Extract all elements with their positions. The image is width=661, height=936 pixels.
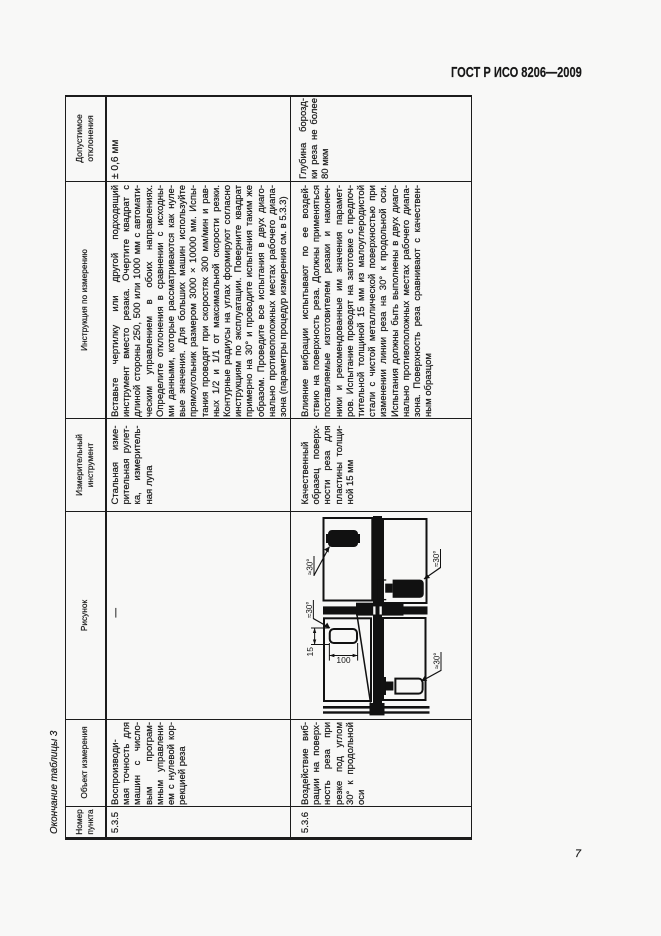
svg-text:≈30°: ≈30° [433,653,442,670]
svg-text:≈30°: ≈30° [305,602,314,619]
svg-text:15: 15 [305,647,315,657]
svg-text:≈30°: ≈30° [432,551,441,568]
svg-text:100: 100 [336,655,350,665]
svg-text:≈30°: ≈30° [306,559,315,576]
